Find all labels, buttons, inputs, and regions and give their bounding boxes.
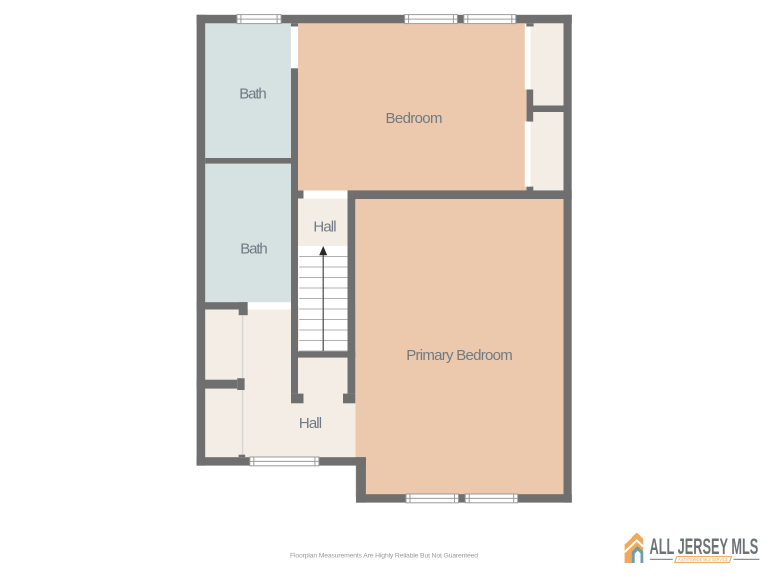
svg-text:ALL JERSEY MLS: ALL JERSEY MLS [650,535,759,560]
svg-text:Floorplan Measurements Are Hig: Floorplan Measurements Are Highly Reliab… [290,553,478,560]
svg-text:Bath: Bath [240,241,268,258]
svg-text:Bedroom: Bedroom [386,110,443,127]
svg-text:Hall: Hall [313,219,336,236]
svg-text:A STATEWIDE MLS SERVICE: A STATEWIDE MLS SERVICE [678,557,728,563]
svg-text:Primary Bedroom: Primary Bedroom [406,347,513,364]
svg-text:Bath: Bath [239,86,267,103]
svg-text:Hall: Hall [299,415,322,432]
